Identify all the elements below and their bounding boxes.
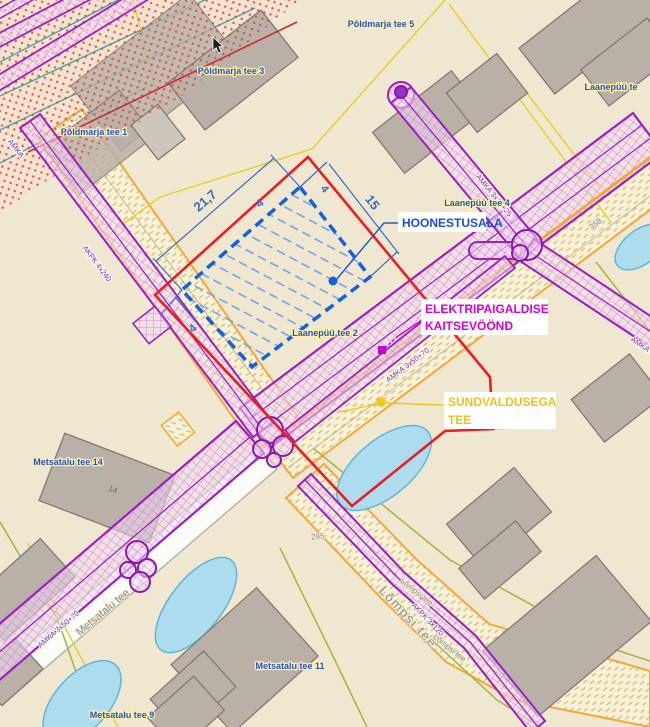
street-label: Metsatalu tee 9 xyxy=(90,710,155,720)
street-label: Põldmarja tee 3 xyxy=(198,66,265,76)
street-label: Laanepüü tee 4 xyxy=(444,198,510,208)
street-label: Põldmarja tee 5 xyxy=(348,19,415,29)
street-label: Laanepüü te xyxy=(584,82,637,92)
junction-circle xyxy=(130,572,150,592)
annotation-label: KAITSEVÖÖND xyxy=(425,318,513,333)
sundvaldus-point xyxy=(377,398,386,407)
annotation-label: HOONESTUSALA xyxy=(402,216,503,230)
annotation-label: TEE xyxy=(448,413,471,427)
junction-circle xyxy=(395,86,407,98)
street-label: Põldmarja tee 1 xyxy=(61,127,128,137)
street-label: Metsatalu tee 11 xyxy=(255,661,324,671)
kaitsevoond-marker xyxy=(378,346,386,354)
annotation-label: SUNDVALDUSEGA xyxy=(448,395,557,409)
hoonestusala-point xyxy=(329,277,338,286)
street-label: Metsatalu tee 14 xyxy=(33,457,103,467)
street-label: Laanepüü tee 2 xyxy=(292,328,358,338)
parcel-number-label: 295 xyxy=(311,531,326,541)
junction-circle xyxy=(267,453,281,467)
annotation-label: ELEKTRIPAIGALDISE xyxy=(425,302,549,316)
junction-circle xyxy=(512,245,528,261)
map-canvas[interactable]: 14 xyxy=(0,0,650,727)
